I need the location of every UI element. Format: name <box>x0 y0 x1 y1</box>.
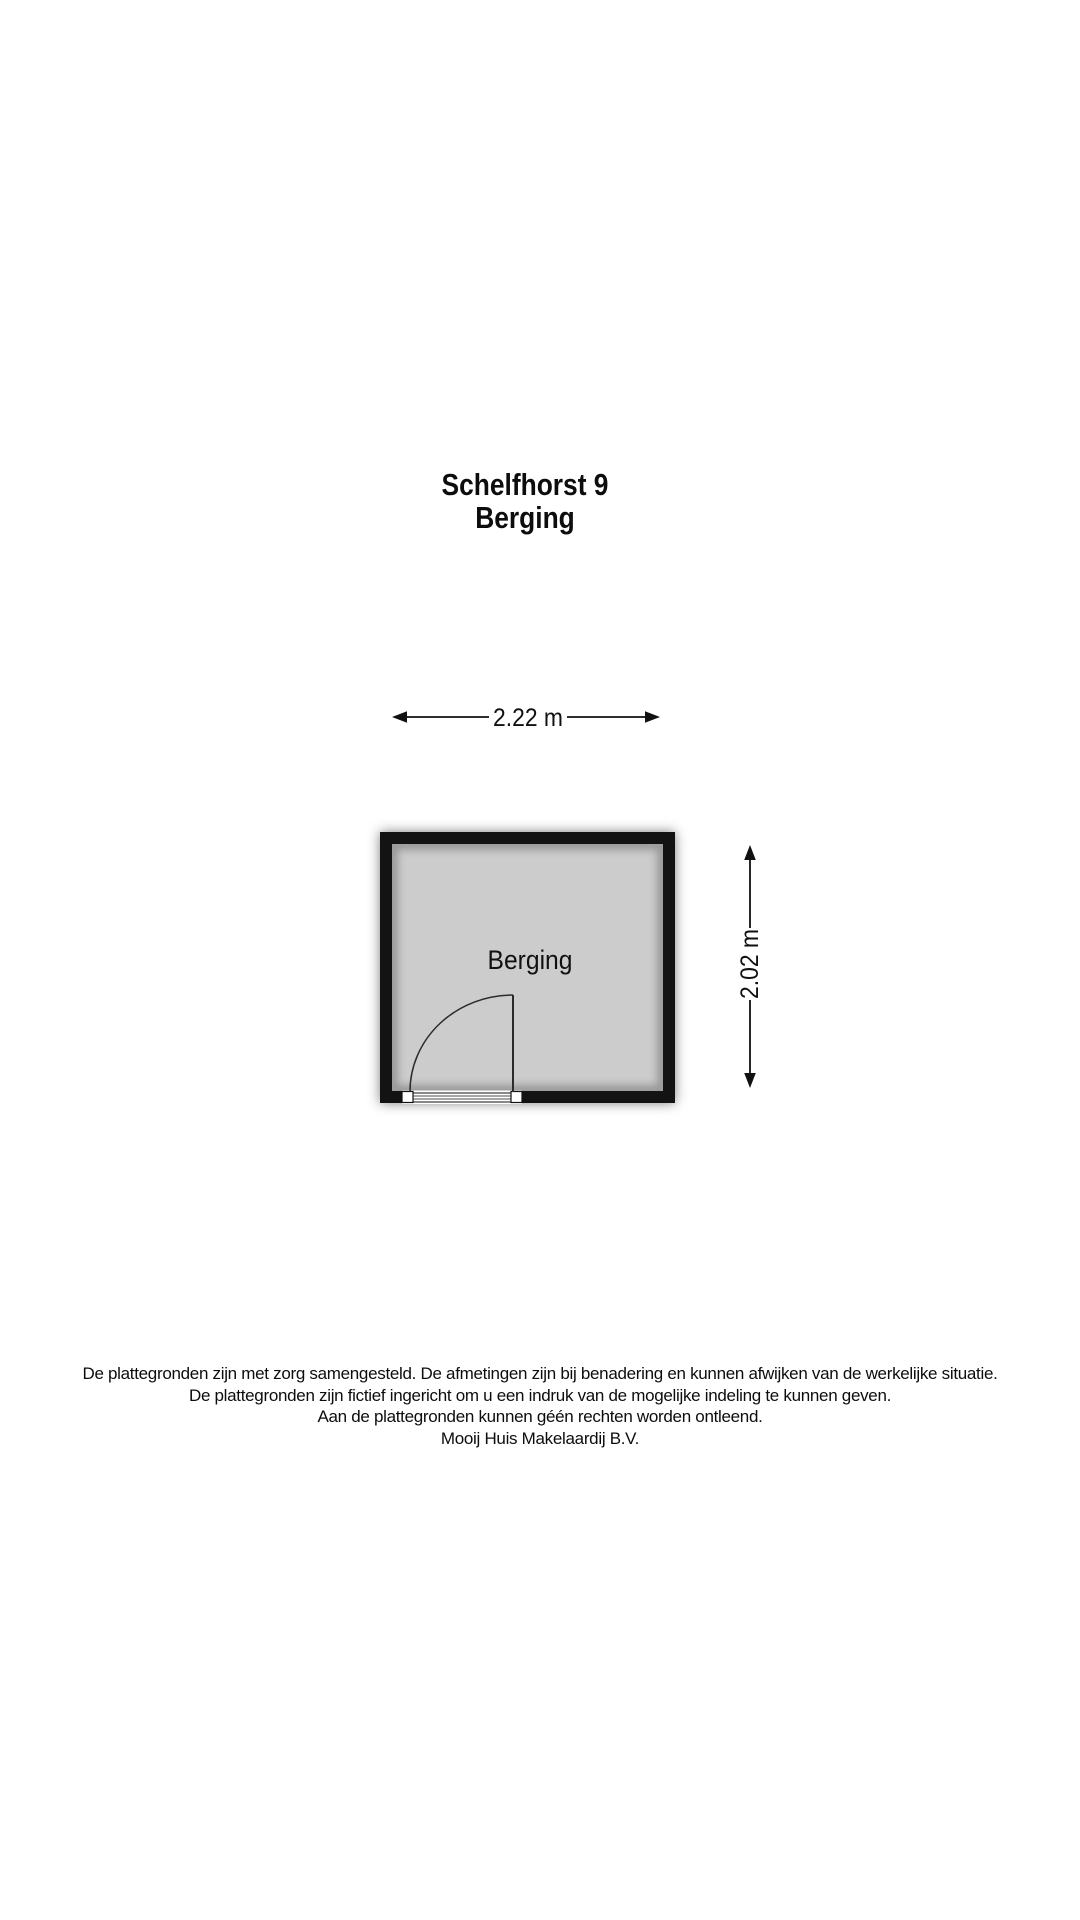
floorplan-drawing: 2.22 m Berging <box>300 630 800 1160</box>
room-label: Berging <box>488 945 573 975</box>
arrow-left-icon <box>392 711 407 723</box>
door-post-right <box>511 1092 522 1103</box>
height-dimension: 2.02 m <box>736 845 764 1088</box>
arrow-up-icon <box>744 845 756 860</box>
disclaimer-line: Mooij Huis Makelaardij B.V. <box>0 1428 1080 1450</box>
storage-room: Berging <box>380 832 675 1104</box>
plan-title-room: Berging <box>442 501 609 534</box>
disclaimer-line: Aan de plattegronden kunnen géén rechten… <box>0 1406 1080 1428</box>
page-root: Schelfhorst 9 Berging 2.22 m <box>0 0 1080 1920</box>
width-dimension: 2.22 m <box>392 704 660 732</box>
door-post-left <box>402 1092 413 1103</box>
disclaimer-line: De plattegronden zijn fictief ingericht … <box>0 1385 1080 1407</box>
height-dimension-label: 2.02 m <box>736 929 764 999</box>
width-dimension-label: 2.22 m <box>493 704 563 732</box>
arrow-down-icon <box>744 1073 756 1088</box>
door-sill <box>413 1093 511 1102</box>
arrow-right-icon <box>645 711 660 723</box>
plan-title-block: Schelfhorst 9 Berging <box>442 468 609 534</box>
disclaimer-line: De plattegronden zijn met zorg samengest… <box>0 1363 1080 1385</box>
disclaimer-block: De plattegronden zijn met zorg samengest… <box>0 1363 1080 1449</box>
plan-title-address: Schelfhorst 9 <box>442 468 609 501</box>
